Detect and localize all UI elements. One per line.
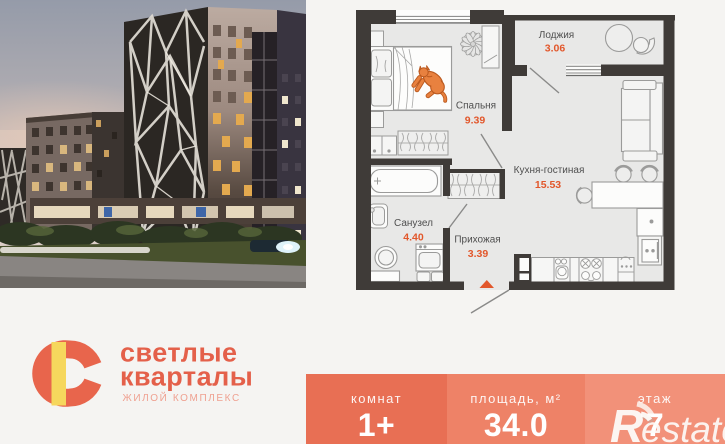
svg-text:Кухня-гостиная: Кухня-гостиная: [514, 165, 585, 176]
svg-text:Прихожая: Прихожая: [454, 235, 500, 246]
svg-text:Спальня: Спальня: [456, 101, 496, 112]
svg-text:кварталы: кварталы: [120, 362, 253, 392]
svg-text:4.40: 4.40: [403, 232, 424, 244]
svg-text:Лоджия: Лоджия: [539, 30, 574, 41]
svg-text:estate: estate: [641, 409, 725, 444]
svg-text:9.39: 9.39: [465, 115, 486, 127]
svg-text:3.39: 3.39: [468, 248, 489, 260]
svg-text:3.06: 3.06: [545, 43, 566, 55]
svg-text:15.53: 15.53: [535, 179, 561, 191]
svg-text:Санузел: Санузел: [394, 218, 433, 229]
svg-text:ЖИЛОЙ КОМПЛЕКС: ЖИЛОЙ КОМПЛЕКС: [123, 391, 241, 404]
